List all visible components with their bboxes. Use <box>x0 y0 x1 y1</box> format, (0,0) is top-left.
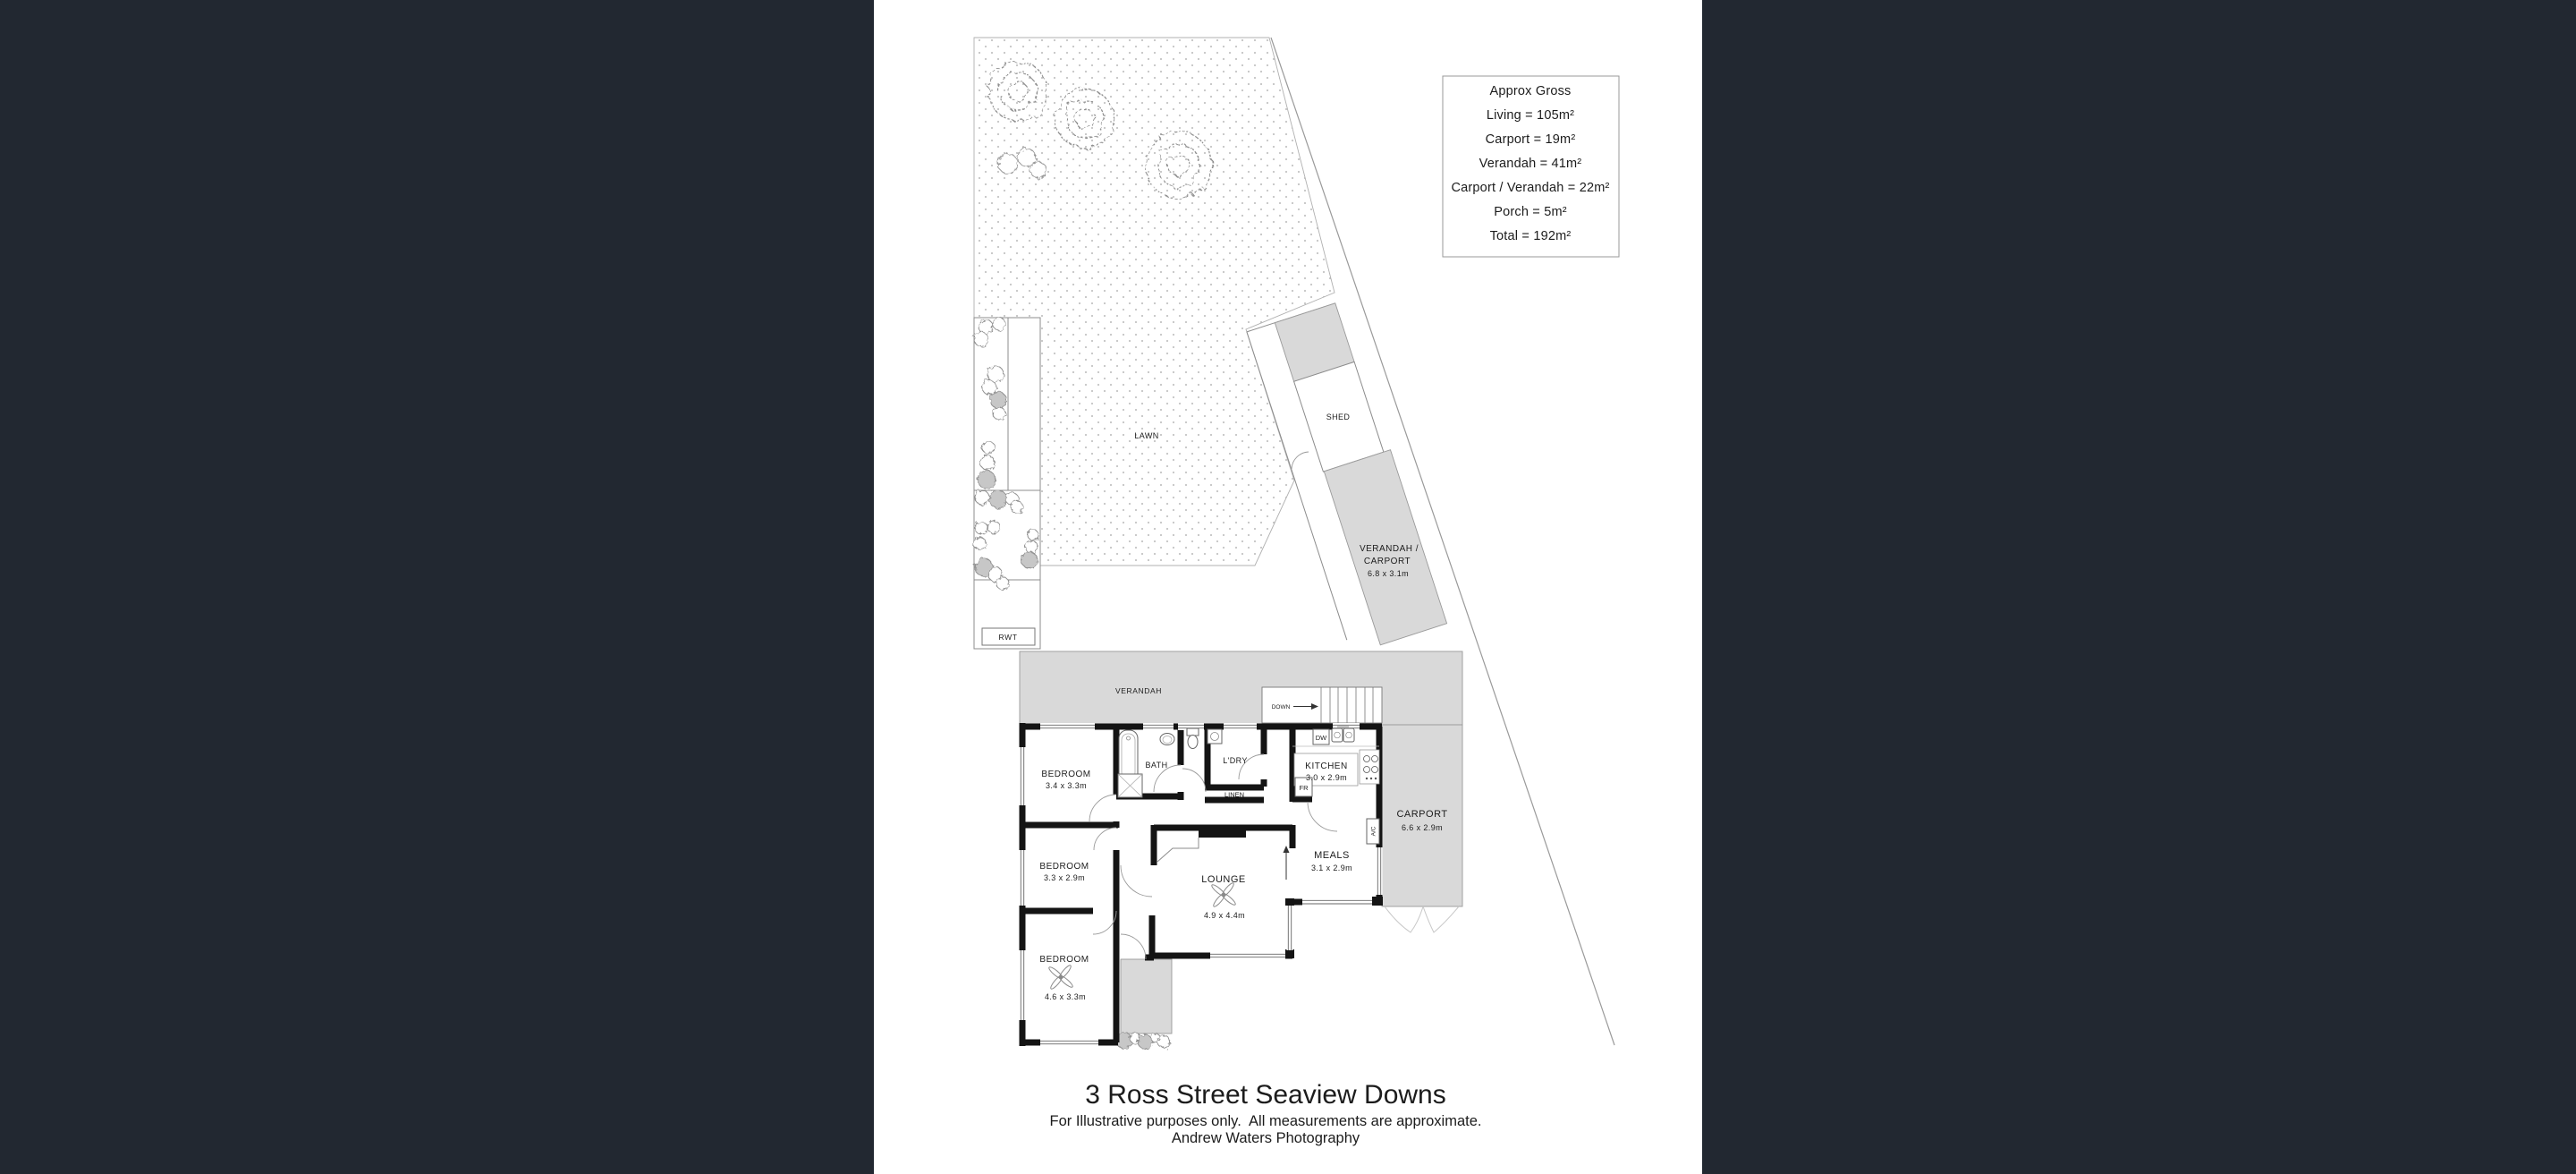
window <box>1020 747 1026 805</box>
window <box>1040 723 1095 730</box>
verandah-label: VERANDAH <box>1115 686 1162 695</box>
bedroom2-label: BEDROOM <box>1039 862 1089 872</box>
bath-label: BATH <box>1146 761 1168 770</box>
shower <box>1118 774 1142 797</box>
stairs: DOWN <box>1262 687 1382 723</box>
disclaimer-text: For Illustrative purposes only. All meas… <box>1050 1113 1482 1129</box>
page-title: 3 Ross Street Seaview Downs <box>1085 1080 1446 1110</box>
lawn-label: LAWN <box>1134 431 1158 440</box>
house-carport: CARPORT 6.6 x 2.9m <box>1372 725 1462 932</box>
window <box>1224 723 1257 730</box>
air-conditioner: A/C <box>1367 819 1379 844</box>
bedroom3-label: BEDROOM <box>1039 955 1089 965</box>
kitchen-label: KITCHEN <box>1305 761 1347 771</box>
fr-label: FR <box>1300 784 1309 792</box>
window <box>1287 906 1293 950</box>
bedroom1-label: BEDROOM <box>1041 770 1090 779</box>
window <box>1377 847 1383 895</box>
verandah-carport-dims: 6.8 x 3.1m <box>1368 569 1409 578</box>
area-line: Verandah = 41m² <box>1479 157 1582 171</box>
laundry-label: L'DRY <box>1223 756 1248 765</box>
window <box>1020 950 1026 1020</box>
floorplan-image: LAWN <box>0 0 2576 1174</box>
canvas: LAWN <box>0 0 2576 1174</box>
window <box>1040 1040 1098 1046</box>
linen-label: LINEN <box>1224 791 1244 799</box>
bush-icon <box>998 154 1018 174</box>
area-line: Carport / Verandah = 22m² <box>1451 181 1609 195</box>
ac-label: A/C <box>1371 826 1377 836</box>
window <box>1210 953 1285 959</box>
bush-icon <box>1030 162 1046 178</box>
house-verandah: VERANDAH <box>1020 651 1462 725</box>
area-summary-box: Approx Gross Living = 105m² Carport = 19… <box>1443 76 1619 257</box>
wall-corner <box>1285 949 1294 958</box>
meals-label: MEALS <box>1314 850 1350 861</box>
area-line: Total = 192m² <box>1490 229 1572 243</box>
lounge-dims: 4.9 x 4.4m <box>1204 911 1245 920</box>
credit-text: Andrew Waters Photography <box>1172 1130 1360 1146</box>
wall-corner <box>1285 898 1294 906</box>
area-line: Living = 105m² <box>1487 108 1574 123</box>
rwt-label: RWT <box>999 633 1018 642</box>
dw-label: DW <box>1316 734 1327 742</box>
area-line: Porch = 5m² <box>1494 205 1567 219</box>
bedroom3-dims: 4.6 x 3.3m <box>1045 992 1086 1001</box>
carport-dims: 6.6 x 2.9m <box>1402 823 1443 832</box>
lounge-label: LOUNGE <box>1201 874 1245 885</box>
dishwasher: DW <box>1313 729 1329 744</box>
verandah-carport-label-1: VERANDAH / <box>1360 544 1419 554</box>
kitchen-dims: 3.0 x 2.9m <box>1306 773 1347 782</box>
bedroom1-dims: 3.4 x 3.3m <box>1046 781 1087 790</box>
area-summary-title: Approx Gross <box>1489 84 1571 98</box>
window <box>1143 723 1174 730</box>
window <box>1302 899 1372 906</box>
vanity-basin <box>1160 734 1174 745</box>
toilet <box>1187 728 1199 749</box>
meals-dims: 3.1 x 2.9m <box>1311 863 1352 872</box>
shed-label: SHED <box>1326 413 1351 421</box>
window <box>1020 850 1026 906</box>
bedroom2-dims: 3.3 x 2.9m <box>1044 873 1085 882</box>
laundry-trough <box>1207 729 1222 744</box>
stove <box>1360 750 1379 784</box>
area-line: Carport = 19m² <box>1486 132 1576 147</box>
porch <box>1116 959 1172 1049</box>
verandah-carport-label-2: CARPORT <box>1364 557 1411 566</box>
fireplace <box>1199 829 1246 838</box>
down-label: DOWN <box>1272 704 1291 710</box>
carport-label: CARPORT <box>1396 809 1447 820</box>
